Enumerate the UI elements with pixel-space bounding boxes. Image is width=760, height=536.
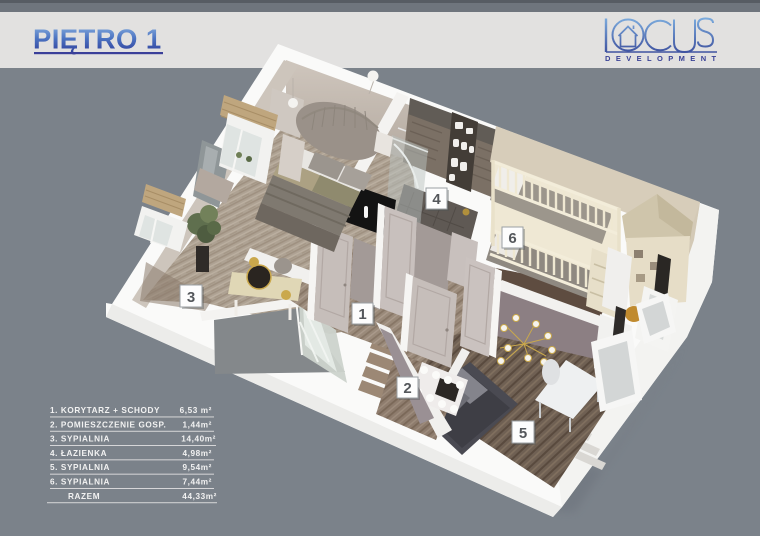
svg-text:5: 5 xyxy=(519,425,527,442)
svg-text:6. SYPIALNIA: 6. SYPIALNIA xyxy=(50,478,110,487)
svg-text:9,54m²: 9,54m² xyxy=(182,463,212,472)
svg-text:3: 3 xyxy=(187,289,195,306)
svg-text:RAZEM: RAZEM xyxy=(68,492,100,501)
svg-text:4: 4 xyxy=(432,191,441,208)
svg-text:14,40m²: 14,40m² xyxy=(181,435,216,444)
svg-text:2. POMIESZCZENIE GOSP.: 2. POMIESZCZENIE GOSP. xyxy=(50,420,166,429)
svg-text:4,98m²: 4,98m² xyxy=(182,449,212,458)
svg-text:DEVELOPMENT: DEVELOPMENT xyxy=(605,54,722,63)
svg-text:PIĘTRO 1: PIĘTRO 1 xyxy=(33,24,162,55)
svg-text:1,44m²: 1,44m² xyxy=(182,420,212,429)
svg-text:4. ŁAZIENKA: 4. ŁAZIENKA xyxy=(50,449,107,458)
svg-text:1. KORYTARZ + SCHODY: 1. KORYTARZ + SCHODY xyxy=(50,406,160,415)
svg-text:3. SYPIALNIA: 3. SYPIALNIA xyxy=(50,435,110,444)
svg-text:5. SYPIALNIA: 5. SYPIALNIA xyxy=(50,463,110,472)
svg-text:6: 6 xyxy=(508,230,516,247)
svg-text:1: 1 xyxy=(358,306,366,323)
svg-text:7,44m²: 7,44m² xyxy=(182,478,212,487)
svg-text:6,53 m²: 6,53 m² xyxy=(180,406,212,415)
svg-text:44,33m²: 44,33m² xyxy=(182,492,217,501)
svg-text:2: 2 xyxy=(403,380,411,397)
